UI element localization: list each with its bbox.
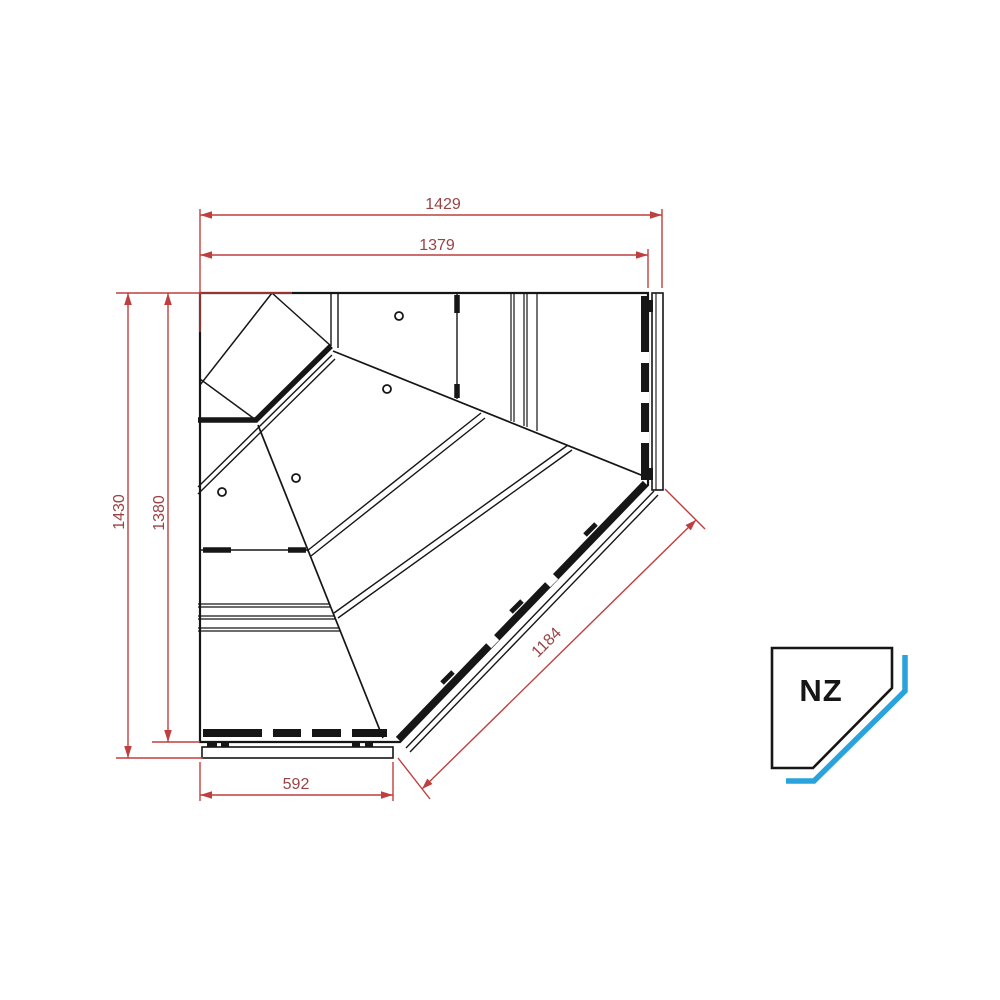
right-end-panel <box>640 293 663 490</box>
dim-label-outer-width: 1429 <box>425 196 461 213</box>
front-hinge-blocks <box>442 524 596 683</box>
arrowhead <box>164 293 172 305</box>
screw-hole <box>218 488 226 496</box>
arrowhead <box>200 251 212 259</box>
middle-shelf-edge-upper <box>307 413 485 556</box>
front-band <box>398 483 645 739</box>
screw-hole <box>395 312 403 320</box>
dimension-inner-height: 1380 <box>151 293 172 742</box>
fan-line-right <box>333 351 646 477</box>
body-outline <box>200 293 648 742</box>
arrowhead <box>636 251 648 259</box>
ext-line <box>665 489 705 529</box>
shelf-edge-double-vertical <box>331 293 338 348</box>
dim-line <box>422 520 696 789</box>
partition-horizontal-group <box>198 604 340 631</box>
dimension-outer-height: 1430 <box>111 293 132 758</box>
arrowhead <box>650 211 662 219</box>
bottom-gasket-band <box>203 729 387 737</box>
arrowhead <box>200 211 212 219</box>
dim-label-inner-height: 1380 <box>151 495 168 531</box>
technical-drawing: 1429 1379 1430 1380 592 <box>0 0 1000 1000</box>
arrowhead <box>164 730 172 742</box>
gasket-gap <box>262 728 273 738</box>
dim-label-end-width: 592 <box>283 776 310 793</box>
dimension-end-width: 592 <box>200 776 393 799</box>
dim-label-inner-width: 1379 <box>419 237 455 254</box>
dim-label-front-diagonal: 1184 <box>529 625 565 661</box>
screw-hole <box>292 474 300 482</box>
arrowhead <box>124 293 132 305</box>
arrowhead <box>200 791 212 799</box>
arrowhead <box>381 791 393 799</box>
end-panel <box>652 293 663 490</box>
shelf-edge-double-diagonal <box>198 355 335 494</box>
gasket-gap <box>640 352 649 363</box>
screw-hole <box>383 385 391 393</box>
front-glass-section <box>398 483 658 752</box>
front-glass-lines <box>406 491 658 752</box>
corner-divider-line <box>200 379 256 420</box>
gasket-gap <box>341 728 352 738</box>
nz-logo: NZ <box>772 648 905 781</box>
page: 1429 1379 1430 1380 592 <box>0 0 1000 1000</box>
dimension-inner-width: 1379 <box>200 237 648 259</box>
gasket-gap <box>640 432 649 443</box>
dimension-outer-width: 1429 <box>200 196 662 219</box>
arrowhead <box>124 746 132 758</box>
nz-logo-outline <box>772 648 892 768</box>
dim-label-outer-height: 1430 <box>111 494 128 530</box>
nz-logo-label: NZ <box>799 673 842 708</box>
fan-line-left <box>258 425 383 738</box>
gasket-gap <box>301 728 312 738</box>
partition-vertical-group <box>511 293 537 431</box>
ext-line <box>398 758 430 799</box>
corner-divider-line <box>272 293 331 346</box>
corner-chamfer-line <box>200 293 272 385</box>
gasket-gap <box>640 392 649 403</box>
right-gasket-band <box>641 296 648 480</box>
counter-body <box>198 293 648 742</box>
extension-lines <box>116 209 705 801</box>
dimension-front-diagonal: 1184 <box>422 520 696 789</box>
skirt-panel <box>202 747 393 758</box>
